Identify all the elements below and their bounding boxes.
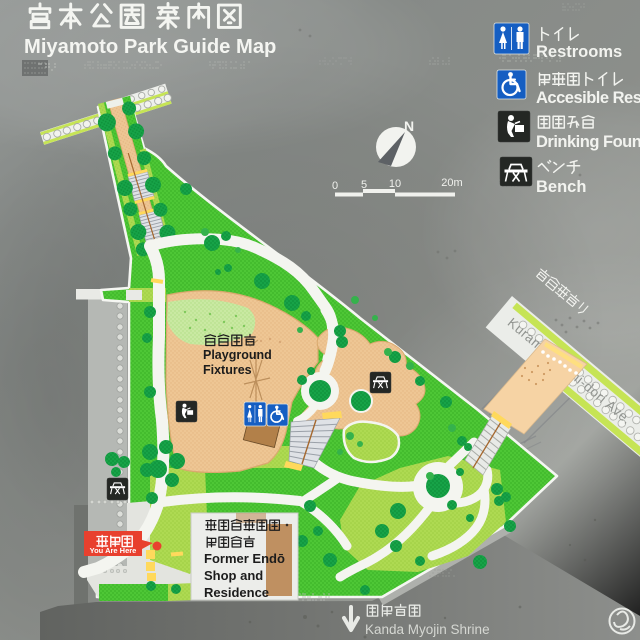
- svg-text:Shop and: Shop and: [204, 568, 263, 583]
- svg-text:Drinking Fount: Drinking Fount: [536, 133, 640, 151]
- svg-text:Restrooms: Restrooms: [536, 43, 622, 61]
- svg-text:Accesible Restro: Accesible Restro: [536, 89, 640, 107]
- svg-text:Bench: Bench: [536, 178, 586, 196]
- svg-text:Residence: Residence: [204, 585, 269, 600]
- svg-text:10: 10: [389, 178, 401, 190]
- svg-text:N: N: [404, 118, 414, 134]
- svg-text:5: 5: [361, 179, 367, 191]
- svg-text:0: 0: [332, 180, 338, 192]
- svg-text:Fixtures: Fixtures: [203, 363, 252, 377]
- svg-text:You Are Here: You Are Here: [90, 546, 137, 555]
- svg-text:20m: 20m: [441, 177, 462, 189]
- svg-text:Former Endō: Former Endō: [204, 551, 285, 566]
- svg-text:Playground: Playground: [203, 348, 272, 362]
- svg-text:Kanda Myojin Shrine: Kanda Myojin Shrine: [365, 622, 490, 637]
- svg-text:Miyamoto Park Guide Map: Miyamoto Park Guide Map: [24, 36, 276, 58]
